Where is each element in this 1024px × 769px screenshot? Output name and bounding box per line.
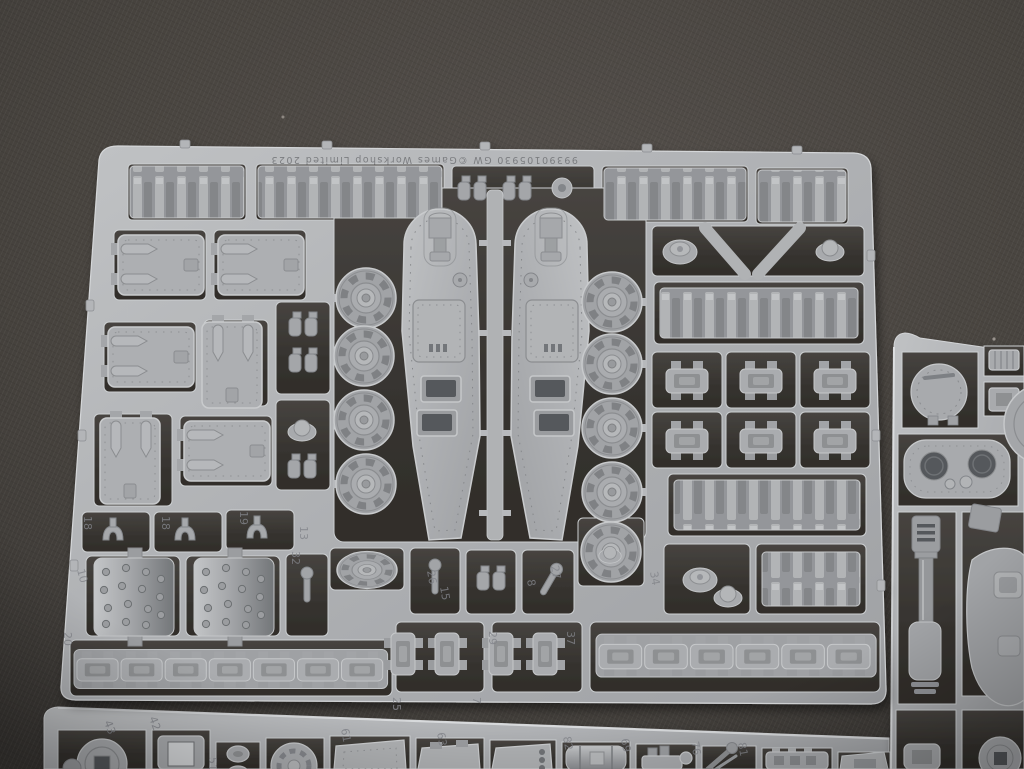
photo-of-model-sprues: 43 42 51 61 63 82 69 76 81 — [0, 0, 1024, 769]
vignette-overlay — [0, 0, 1024, 769]
sprue-photo-canvas: 43 42 51 61 63 82 69 76 81 — [0, 0, 1024, 769]
